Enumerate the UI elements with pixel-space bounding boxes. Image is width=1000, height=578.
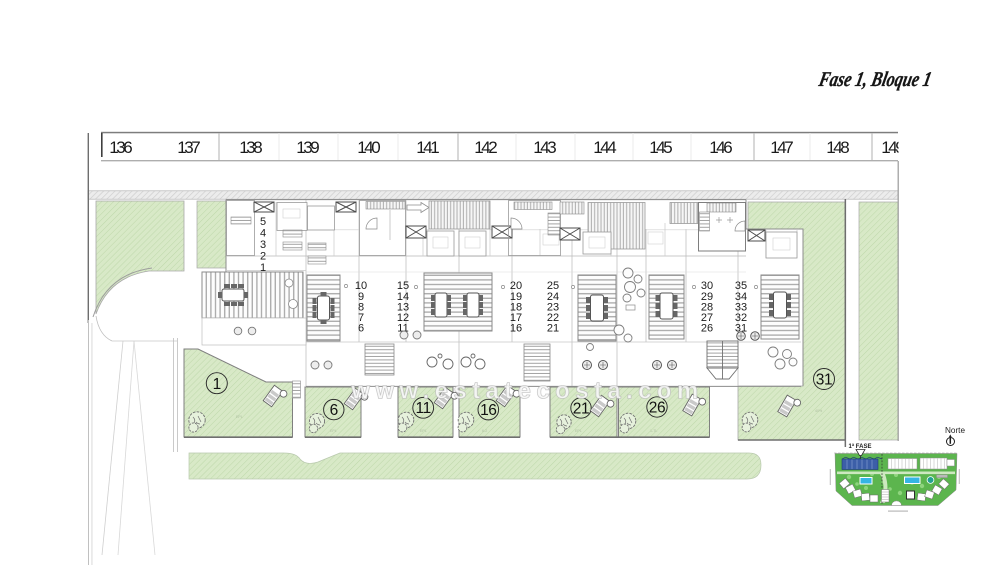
svg-text:140: 140	[357, 138, 381, 157]
svg-text:141: 141	[416, 138, 440, 157]
svg-text:146: 146	[709, 138, 733, 157]
svg-text:1: 1	[213, 376, 221, 393]
svg-text:5: 5	[260, 216, 266, 228]
svg-text:148: 148	[826, 138, 850, 157]
svg-text:EPL: EPL	[330, 429, 337, 433]
svg-text:EPL: EPL	[420, 429, 427, 433]
svg-text:145: 145	[649, 138, 673, 157]
svg-text:40%: 40%	[815, 409, 823, 413]
svg-text:16: 16	[480, 402, 496, 419]
svg-text:26: 26	[701, 323, 713, 335]
svg-text:EPL: EPL	[236, 415, 243, 419]
svg-text:EPL: EPL	[575, 429, 582, 433]
svg-text:6-2: 6-2	[482, 429, 487, 433]
svg-text:Fase 1, Bloque 1: Fase 1, Bloque 1	[816, 67, 934, 91]
svg-text:6: 6	[330, 402, 338, 419]
svg-text:2: 2	[260, 251, 266, 263]
svg-text:Norte: Norte	[945, 426, 965, 435]
svg-text:139: 139	[296, 138, 320, 157]
svg-text:21: 21	[547, 323, 559, 335]
svg-text:www.estatecosta.com: www.estatecosta.com	[350, 378, 703, 405]
svg-text:142: 142	[474, 138, 498, 157]
svg-text:4: 4	[260, 228, 266, 240]
svg-text:6: 6	[358, 323, 364, 335]
svg-text:137: 137	[177, 138, 201, 157]
svg-text:16: 16	[510, 323, 522, 335]
svg-text:31: 31	[816, 371, 832, 388]
svg-text:136: 136	[109, 138, 133, 157]
svg-text:143: 143	[533, 138, 557, 157]
svg-text:1-TL: 1-TL	[650, 429, 657, 433]
svg-text:3: 3	[260, 239, 266, 251]
svg-text:147: 147	[770, 138, 794, 157]
svg-text:138: 138	[239, 138, 263, 157]
svg-text:144: 144	[593, 138, 617, 157]
